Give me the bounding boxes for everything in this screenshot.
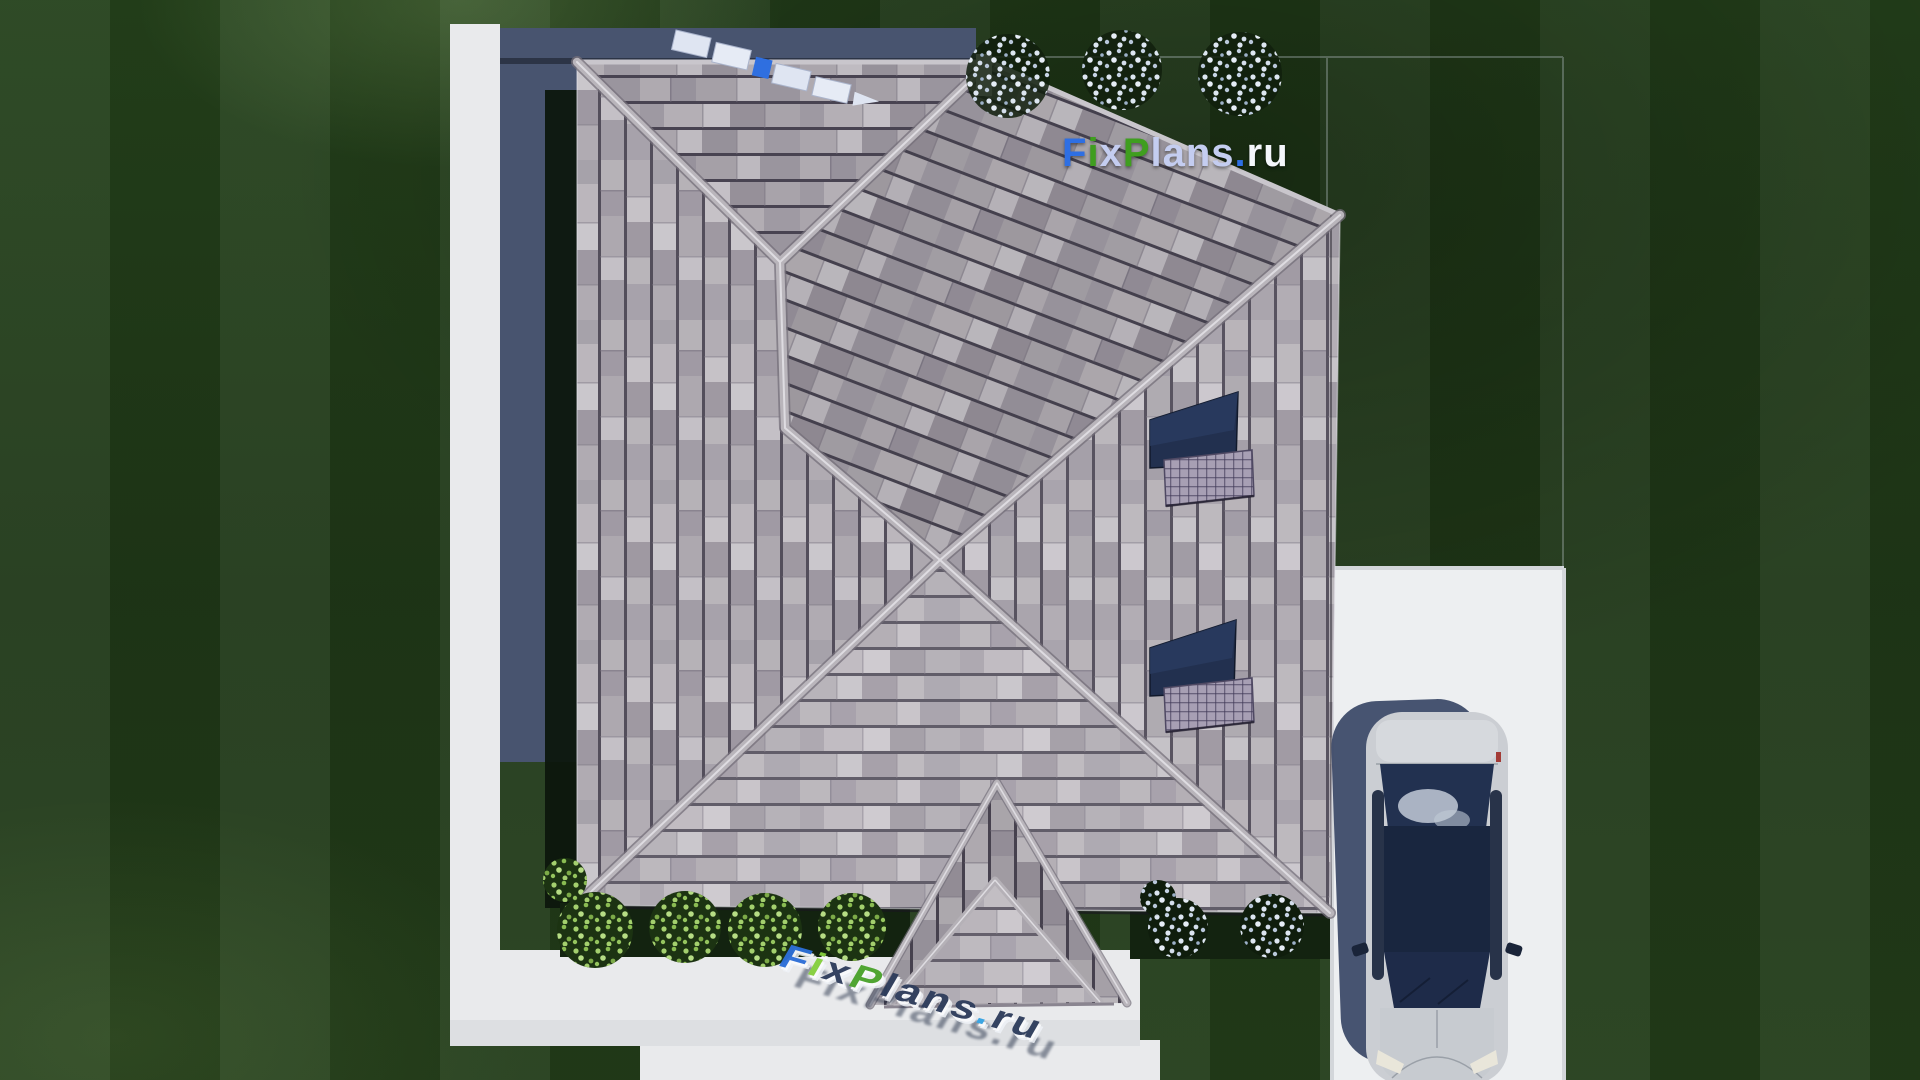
aerial-house-render: FixPlans.ru FixPlans.ru (0, 0, 1920, 1080)
watermark-letter: P (1123, 131, 1151, 175)
watermark-letter: F (1062, 131, 1087, 175)
car-roof (1384, 826, 1490, 952)
watermark-letter: x (1100, 131, 1123, 175)
watermark-dot: . (1235, 131, 1247, 175)
fixplans-watermark: FixPlans.ru (1062, 131, 1289, 176)
car (1330, 697, 1523, 1080)
watermark-letters: lans (1151, 131, 1235, 175)
side-path (450, 24, 500, 1046)
car-windshield (1384, 952, 1490, 1008)
flower-bushes-top (966, 30, 1282, 118)
watermark-ru: ru (1247, 131, 1289, 175)
scene-graphics (0, 0, 1920, 1080)
roof (577, 54, 1340, 1007)
watermark-letter: i (1087, 131, 1099, 175)
